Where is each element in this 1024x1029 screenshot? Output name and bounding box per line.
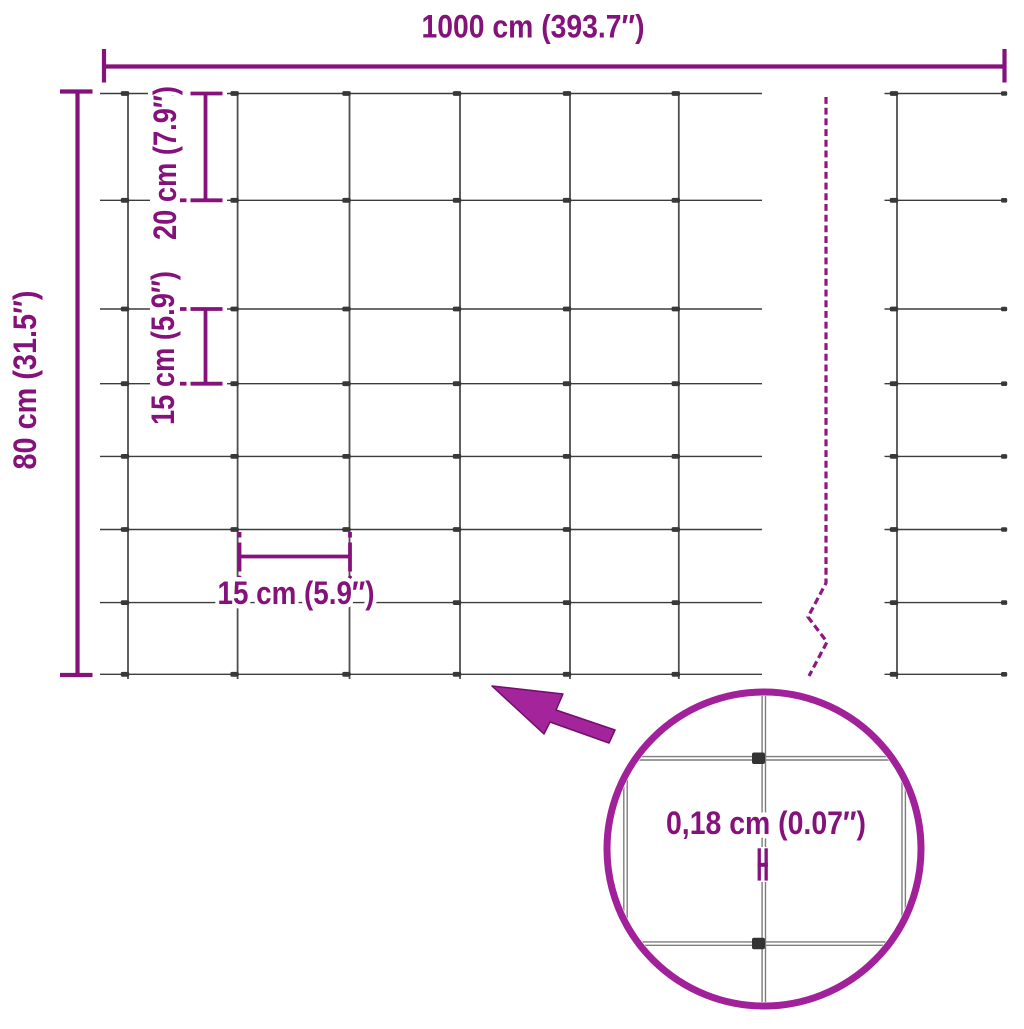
svg-text:80 cm (31.5″): 80 cm (31.5″) — [7, 291, 43, 470]
svg-text:15 cm (5.9″): 15 cm (5.9″) — [145, 271, 181, 425]
svg-text:15 cm (5.9″): 15 cm (5.9″) — [218, 575, 375, 611]
svg-text:1000 cm (393.7″): 1000 cm (393.7″) — [422, 9, 645, 45]
svg-text:20 cm (7.9″): 20 cm (7.9″) — [147, 86, 183, 240]
svg-text:0,18 cm (0.07″): 0,18 cm (0.07″) — [666, 805, 866, 841]
